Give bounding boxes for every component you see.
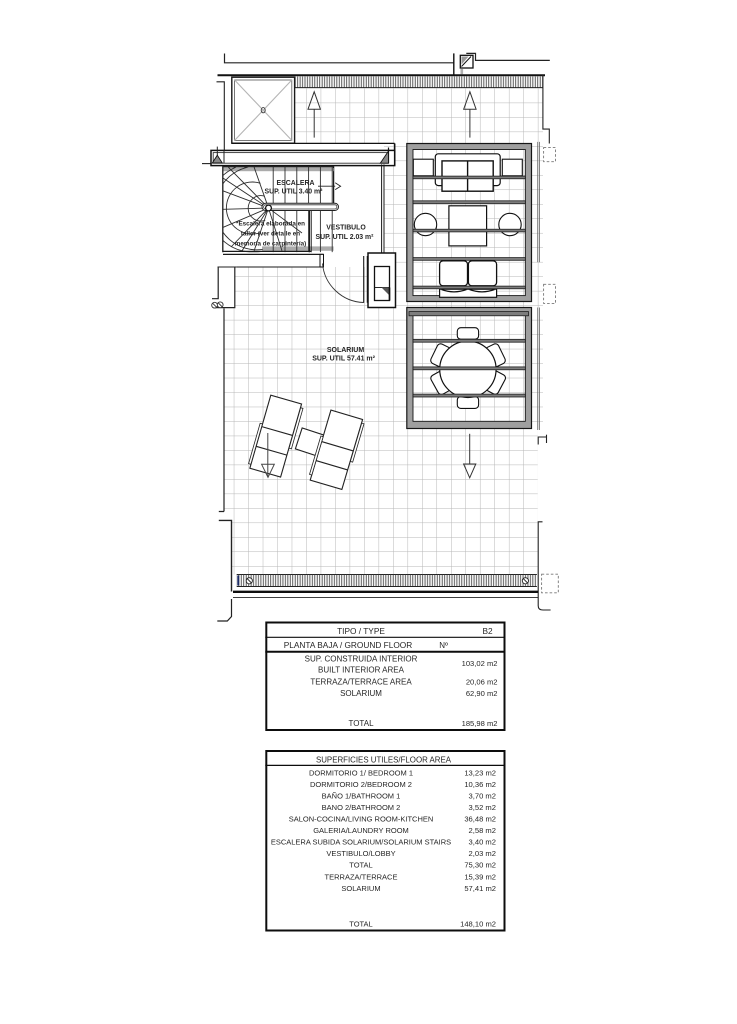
svg-text:memoria de carpintería): memoria de carpintería) — [235, 241, 306, 248]
svg-text:TERRAZA/TERRACE: TERRAZA/TERRACE — [325, 872, 398, 881]
svg-text:B2: B2 — [483, 626, 494, 636]
svg-text:DORMITORIO 2/BEDROOM 2: DORMITORIO 2/BEDROOM 2 — [310, 780, 412, 789]
svg-text:SOLARIUM: SOLARIUM — [327, 347, 365, 354]
svg-text:GALERIA/LAUNDRY ROOM: GALERIA/LAUNDRY ROOM — [313, 826, 409, 835]
svg-text:Nº: Nº — [439, 641, 448, 650]
svg-text:VESTIBULO/LOBBY: VESTIBULO/LOBBY — [326, 849, 395, 858]
svg-text:SOLARIUM: SOLARIUM — [341, 884, 380, 893]
svg-text:103,02 m2: 103,02 m2 — [462, 659, 498, 668]
svg-text:TOTAL: TOTAL — [348, 719, 374, 728]
svg-text:62,90 m2: 62,90 m2 — [466, 689, 498, 698]
svg-text:TIPO / TYPE: TIPO / TYPE — [337, 626, 385, 636]
svg-text:SUP. UTIL 2.03 m²: SUP. UTIL 2.03 m² — [316, 234, 375, 241]
svg-text:57,41 m2: 57,41 m2 — [464, 884, 496, 893]
svg-text:3,52 m2: 3,52 m2 — [469, 803, 496, 812]
svg-text:TOTAL: TOTAL — [349, 861, 372, 870]
svg-text:10,36 m2: 10,36 m2 — [464, 780, 496, 789]
svg-text:SALON-COCINA/LIVING ROOM-KITCH: SALON-COCINA/LIVING ROOM-KITCHEN — [289, 815, 434, 824]
svg-text:36,48 m2: 36,48 m2 — [464, 815, 496, 824]
svg-text:3,70 m2: 3,70 m2 — [469, 791, 496, 800]
svg-text:BAÑO 1/BATHROOM 1: BAÑO 1/BATHROOM 1 — [322, 791, 401, 800]
svg-text:TERRAZA/TERRACE AREA: TERRAZA/TERRACE AREA — [310, 677, 412, 686]
svg-text:20,06 m2: 20,06 m2 — [466, 677, 498, 686]
svg-text:2,58 m2: 2,58 m2 — [469, 826, 496, 835]
svg-text:VESTIBULO: VESTIBULO — [326, 224, 366, 231]
svg-text:SOLARIUM: SOLARIUM — [340, 689, 382, 698]
svg-text:taller (ver detalle en: taller (ver detalle en — [241, 231, 300, 238]
svg-text:BANO 2/BATHROOM 2: BANO 2/BATHROOM 2 — [322, 803, 401, 812]
svg-text:75,30 m2: 75,30 m2 — [464, 861, 496, 870]
svg-text:PLANTA BAJA / GROUND FLOOR: PLANTA BAJA / GROUND FLOOR — [284, 640, 412, 650]
svg-text:TOTAL: TOTAL — [349, 919, 372, 928]
svg-text:148,10 m2: 148,10 m2 — [460, 919, 496, 928]
svg-text:SUP. UTIL 3.40 m²: SUP. UTIL 3.40 m² — [265, 189, 324, 196]
svg-text:185,98 m2: 185,98 m2 — [462, 719, 498, 728]
svg-text:SUP. CONSTRUIDA INTERIOR: SUP. CONSTRUIDA INTERIOR — [305, 654, 418, 663]
svg-text:DORMITORIO 1/ BEDROOM 1: DORMITORIO 1/ BEDROOM 1 — [309, 768, 413, 777]
svg-text:*Escalera elaborada en: *Escalera elaborada en — [236, 221, 305, 228]
svg-text:15,39 m2: 15,39 m2 — [464, 872, 496, 881]
svg-text:2,03 m2: 2,03 m2 — [469, 849, 496, 858]
svg-text:13,23 m2: 13,23 m2 — [464, 768, 496, 777]
svg-text:ESCALERA: ESCALERA — [277, 180, 315, 187]
svg-text:BUILT INTERIOR AREA: BUILT INTERIOR AREA — [318, 665, 405, 674]
svg-text:3,40 m2: 3,40 m2 — [469, 838, 496, 847]
svg-text:SUPERFICIES UTILES/FLOOR AREA: SUPERFICIES UTILES/FLOOR AREA — [316, 756, 452, 765]
svg-text:SUP. UTIL 57.41 m²: SUP. UTIL 57.41 m² — [312, 356, 375, 363]
svg-text:ESCALERA SUBIDA SOLARIUM/SOLAR: ESCALERA SUBIDA SOLARIUM/SOLARIUM STAIRS — [271, 838, 451, 847]
